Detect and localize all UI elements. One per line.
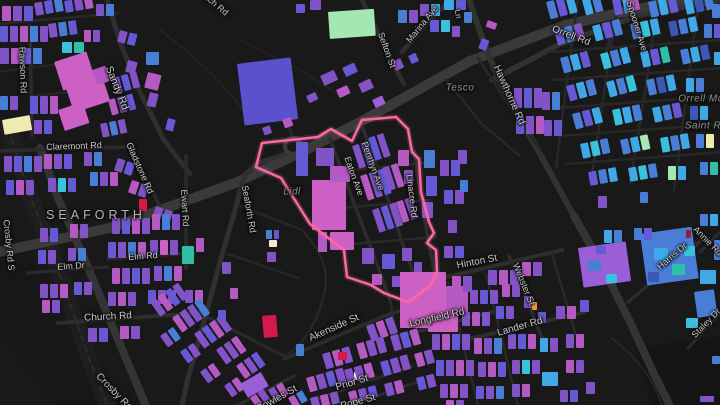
building-cluster — [538, 312, 546, 323]
building[interactable] — [464, 12, 472, 23]
building[interactable] — [132, 218, 140, 234]
building-cluster — [586, 382, 595, 394]
building[interactable] — [514, 88, 522, 108]
building[interactable] — [118, 242, 126, 258]
building-cluster — [139, 199, 147, 211]
building[interactable] — [68, 248, 76, 261]
building-cluster — [488, 270, 519, 285]
building[interactable] — [154, 266, 162, 281]
building[interactable] — [570, 390, 578, 402]
building[interactable] — [696, 134, 704, 148]
building[interactable] — [131, 326, 140, 339]
building[interactable] — [432, 334, 440, 350]
building[interactable] — [476, 386, 484, 399]
building[interactable] — [84, 30, 91, 42]
building[interactable] — [4, 156, 12, 172]
building[interactable] — [478, 362, 486, 377]
building[interactable] — [296, 142, 308, 176]
building[interactable] — [450, 384, 458, 398]
building-cluster — [382, 254, 395, 269]
building[interactable] — [312, 180, 346, 230]
building[interactable] — [498, 362, 506, 377]
building[interactable] — [218, 310, 226, 320]
building[interactable] — [269, 240, 277, 247]
building-cluster — [474, 338, 502, 354]
building[interactable] — [458, 150, 467, 164]
building[interactable] — [44, 120, 52, 134]
building[interactable] — [62, 42, 72, 53]
building[interactable] — [596, 246, 606, 254]
building[interactable] — [274, 230, 279, 239]
building[interactable] — [554, 120, 562, 136]
building[interactable] — [34, 120, 42, 134]
building[interactable] — [472, 312, 480, 326]
building[interactable] — [24, 6, 33, 21]
building[interactable] — [196, 238, 204, 252]
building-cluster — [672, 264, 685, 275]
building-cluster — [686, 230, 691, 238]
building-cluster — [150, 240, 178, 255]
building[interactable] — [99, 328, 108, 342]
building-cluster — [470, 290, 498, 304]
building[interactable] — [696, 78, 704, 92]
building[interactable] — [10, 96, 18, 110]
building-cluster — [182, 246, 194, 264]
building[interactable] — [532, 302, 537, 310]
building-cluster — [452, 26, 460, 37]
building[interactable] — [486, 386, 494, 399]
building[interactable] — [170, 240, 178, 255]
building[interactable] — [398, 10, 407, 23]
building-cluster — [222, 262, 231, 274]
building[interactable] — [460, 180, 468, 192]
building[interactable] — [48, 250, 56, 264]
building[interactable] — [128, 242, 136, 258]
building[interactable] — [174, 266, 182, 281]
building[interactable] — [446, 360, 454, 376]
building-cluster — [460, 180, 468, 192]
building[interactable] — [488, 270, 497, 285]
building[interactable] — [30, 96, 38, 114]
building[interactable] — [24, 156, 32, 172]
building[interactable] — [499, 270, 508, 285]
building[interactable] — [330, 166, 350, 182]
building-cluster — [700, 396, 714, 402]
building[interactable] — [14, 156, 22, 172]
building-cluster — [524, 296, 532, 308]
building[interactable] — [160, 240, 168, 255]
building[interactable] — [480, 290, 488, 304]
building[interactable] — [430, 20, 439, 32]
building[interactable] — [20, 26, 28, 42]
building[interactable] — [164, 266, 172, 281]
building[interactable] — [522, 262, 531, 276]
building[interactable] — [328, 9, 376, 39]
building[interactable] — [508, 334, 516, 349]
building[interactable] — [50, 96, 58, 114]
building[interactable] — [26, 180, 34, 195]
building[interactable] — [40, 96, 48, 114]
building[interactable] — [60, 284, 68, 298]
building[interactable] — [556, 306, 565, 319]
building[interactable] — [106, 4, 114, 16]
building[interactable] — [122, 218, 130, 234]
building[interactable] — [431, 4, 440, 16]
building-cluster — [712, 356, 720, 364]
building[interactable] — [550, 338, 558, 352]
building[interactable] — [316, 148, 334, 166]
building[interactable] — [522, 384, 530, 397]
building[interactable] — [146, 52, 159, 65]
building-cluster — [310, 0, 321, 10]
building[interactable] — [686, 230, 691, 238]
building[interactable] — [704, 24, 712, 38]
building[interactable] — [606, 274, 617, 283]
building[interactable] — [52, 300, 60, 313]
building[interactable] — [567, 306, 576, 319]
building[interactable] — [58, 178, 66, 192]
building[interactable] — [64, 154, 72, 169]
building[interactable] — [580, 300, 589, 312]
building[interactable] — [118, 292, 126, 306]
building[interactable] — [11, 48, 20, 64]
building[interactable] — [518, 334, 526, 349]
building[interactable] — [494, 338, 502, 354]
building[interactable] — [237, 57, 298, 125]
building-cluster — [478, 362, 506, 377]
building[interactable] — [382, 254, 395, 269]
building-cluster — [296, 344, 304, 356]
building[interactable] — [436, 360, 444, 376]
building[interactable] — [496, 306, 504, 319]
building[interactable] — [460, 384, 468, 398]
building[interactable] — [542, 92, 550, 110]
building[interactable] — [172, 214, 180, 230]
building[interactable] — [456, 360, 464, 376]
building[interactable] — [128, 292, 136, 306]
building[interactable] — [40, 228, 48, 242]
building[interactable] — [440, 384, 448, 398]
building[interactable] — [13, 6, 22, 21]
building[interactable] — [700, 162, 708, 175]
building[interactable] — [455, 246, 464, 258]
building[interactable] — [442, 334, 450, 350]
building[interactable] — [94, 152, 102, 166]
building-cluster — [414, 262, 422, 272]
building-cluster — [532, 302, 537, 310]
building[interactable] — [266, 230, 272, 239]
building[interactable] — [398, 150, 409, 166]
building[interactable] — [40, 284, 48, 298]
building[interactable] — [230, 288, 238, 299]
building[interactable] — [506, 306, 514, 319]
building[interactable] — [108, 242, 116, 258]
building[interactable] — [162, 214, 170, 230]
building[interactable] — [614, 230, 622, 243]
building[interactable] — [10, 26, 18, 42]
building[interactable] — [262, 315, 278, 338]
building[interactable] — [93, 30, 100, 42]
building[interactable] — [441, 20, 450, 32]
building[interactable] — [542, 372, 558, 386]
building[interactable] — [100, 172, 108, 186]
building-cluster — [714, 52, 720, 65]
building[interactable] — [444, 0, 454, 10]
building[interactable] — [706, 134, 714, 148]
building[interactable] — [490, 290, 498, 304]
building[interactable] — [80, 224, 88, 238]
building[interactable] — [566, 334, 574, 348]
building[interactable] — [48, 178, 56, 192]
building[interactable] — [512, 284, 520, 297]
building[interactable] — [668, 166, 676, 180]
building[interactable] — [142, 218, 150, 234]
building-cluster — [700, 270, 716, 284]
building[interactable] — [182, 246, 194, 264]
building[interactable] — [310, 0, 321, 10]
building[interactable] — [598, 196, 607, 208]
building[interactable] — [444, 246, 453, 258]
building[interactable] — [648, 272, 659, 282]
building-cluster — [40, 284, 68, 298]
building[interactable] — [456, 400, 464, 405]
building[interactable] — [54, 154, 62, 169]
building[interactable] — [132, 268, 140, 284]
building[interactable] — [402, 248, 412, 261]
building[interactable] — [678, 166, 686, 180]
building[interactable] — [502, 284, 510, 297]
building-cluster — [424, 150, 435, 168]
building[interactable] — [710, 162, 718, 175]
building-cluster — [448, 220, 457, 233]
building[interactable] — [640, 192, 648, 203]
building[interactable] — [484, 338, 492, 354]
building[interactable] — [474, 338, 482, 354]
building[interactable] — [2, 6, 11, 21]
building[interactable] — [34, 156, 42, 172]
building[interactable] — [50, 284, 58, 298]
building[interactable] — [152, 214, 160, 230]
building[interactable] — [524, 88, 532, 108]
building[interactable] — [74, 42, 84, 53]
building[interactable] — [70, 224, 78, 238]
building[interactable] — [44, 154, 52, 169]
building-cluster — [588, 260, 601, 271]
building[interactable] — [338, 352, 347, 360]
building[interactable] — [714, 24, 720, 38]
building-cluster — [362, 248, 374, 264]
building[interactable] — [40, 26, 48, 42]
building[interactable] — [672, 264, 685, 275]
building[interactable] — [470, 290, 478, 304]
building[interactable] — [0, 96, 8, 110]
map-canvas[interactable]: Beach RdSandy RdRawson RdClaremont RdGla… — [0, 0, 720, 405]
building[interactable] — [534, 88, 542, 108]
building-cluster — [196, 238, 204, 252]
building[interactable] — [122, 268, 130, 284]
building[interactable] — [296, 4, 305, 13]
building[interactable] — [78, 248, 86, 261]
building[interactable] — [452, 276, 461, 292]
building[interactable] — [604, 230, 612, 243]
building[interactable] — [686, 78, 694, 92]
building[interactable] — [712, 356, 720, 364]
building-cluster — [274, 230, 279, 239]
building[interactable] — [84, 282, 92, 295]
building-cluster — [267, 252, 276, 262]
building[interactable] — [710, 214, 718, 226]
building[interactable] — [522, 360, 530, 374]
building[interactable] — [712, 4, 720, 18]
building[interactable] — [684, 246, 695, 256]
building[interactable] — [22, 48, 31, 64]
building[interactable] — [512, 360, 520, 374]
building[interactable] — [544, 120, 552, 136]
building-cluster — [330, 166, 350, 182]
building[interactable] — [296, 344, 304, 356]
building[interactable] — [576, 360, 584, 373]
building-cluster — [654, 248, 668, 260]
building[interactable] — [533, 262, 542, 276]
building-cluster — [398, 150, 409, 166]
building[interactable] — [528, 334, 536, 349]
building[interactable] — [138, 242, 146, 258]
building[interactable] — [462, 334, 470, 350]
building[interactable] — [96, 4, 104, 16]
building[interactable] — [0, 26, 8, 42]
building[interactable] — [463, 276, 472, 292]
building-cluster — [596, 246, 606, 254]
building[interactable] — [444, 190, 453, 204]
building-cluster — [542, 372, 558, 386]
building-cluster — [580, 300, 589, 312]
building[interactable] — [686, 318, 698, 328]
building[interactable] — [526, 116, 534, 134]
building[interactable] — [586, 382, 595, 394]
building[interactable] — [700, 396, 714, 402]
building[interactable] — [139, 199, 147, 211]
building-cluster — [694, 289, 717, 318]
building[interactable] — [108, 292, 116, 306]
building[interactable] — [700, 270, 716, 284]
building[interactable] — [452, 26, 460, 37]
building[interactable] — [566, 360, 574, 373]
building[interactable] — [466, 360, 474, 376]
building[interactable] — [120, 326, 129, 339]
building[interactable] — [267, 252, 276, 262]
building[interactable] — [524, 296, 532, 308]
building-cluster — [464, 12, 472, 23]
building[interactable] — [110, 172, 118, 186]
building[interactable] — [488, 362, 496, 377]
building[interactable] — [74, 282, 82, 295]
building[interactable] — [33, 48, 42, 64]
building[interactable] — [714, 240, 720, 260]
building[interactable] — [510, 270, 519, 285]
building-cluster — [440, 384, 468, 398]
building[interactable] — [538, 312, 546, 323]
building[interactable] — [588, 260, 601, 271]
building[interactable] — [50, 228, 58, 242]
building[interactable] — [540, 338, 548, 352]
building-cluster — [316, 148, 334, 166]
building[interactable] — [700, 106, 708, 120]
building[interactable] — [714, 52, 720, 65]
building-cluster — [0, 26, 48, 42]
building[interactable] — [68, 178, 76, 192]
building-cluster — [230, 288, 238, 299]
building-cluster — [704, 24, 720, 38]
building[interactable] — [455, 190, 464, 204]
building[interactable] — [700, 214, 708, 226]
building[interactable] — [38, 250, 46, 264]
building-cluster — [686, 318, 698, 328]
building[interactable] — [84, 152, 92, 166]
building-cluster — [328, 9, 376, 39]
building-cluster — [338, 352, 347, 360]
building[interactable] — [414, 262, 422, 272]
building[interactable] — [424, 150, 435, 168]
building[interactable] — [16, 180, 24, 195]
building[interactable] — [426, 176, 437, 196]
building[interactable] — [222, 262, 231, 274]
building-cluster — [296, 4, 305, 13]
building[interactable] — [420, 4, 429, 16]
building-cluster — [512, 360, 540, 374]
building[interactable] — [576, 334, 584, 348]
building[interactable] — [88, 328, 97, 342]
building[interactable] — [532, 360, 540, 374]
building[interactable] — [0, 48, 9, 64]
building[interactable] — [448, 220, 457, 233]
building[interactable] — [644, 228, 652, 240]
building[interactable] — [404, 170, 413, 184]
building[interactable] — [440, 160, 449, 176]
building[interactable] — [690, 106, 698, 120]
building[interactable] — [6, 180, 14, 195]
building[interactable] — [634, 228, 642, 240]
building[interactable] — [409, 10, 418, 23]
building[interactable] — [30, 26, 38, 42]
building[interactable] — [112, 268, 120, 284]
building[interactable] — [456, 0, 466, 10]
building[interactable] — [446, 400, 454, 405]
building-cluster — [598, 196, 607, 208]
building[interactable] — [362, 248, 374, 264]
building[interactable] — [482, 312, 490, 326]
building[interactable] — [512, 384, 520, 397]
building-cluster — [2, 6, 33, 21]
building-cluster — [90, 172, 118, 186]
building-cluster — [296, 142, 308, 176]
building[interactable] — [560, 390, 568, 402]
building[interactable] — [552, 92, 560, 110]
building[interactable] — [112, 218, 120, 234]
building[interactable] — [516, 116, 524, 134]
building[interactable] — [452, 334, 460, 350]
building[interactable] — [142, 268, 150, 284]
building[interactable] — [150, 240, 158, 255]
building-cluster — [426, 176, 437, 196]
building[interactable] — [536, 116, 544, 134]
building[interactable] — [42, 300, 50, 313]
building[interactable] — [496, 386, 504, 399]
building[interactable] — [462, 312, 470, 326]
building[interactable] — [90, 172, 98, 186]
building[interactable] — [654, 248, 668, 260]
building[interactable] — [694, 289, 717, 318]
building-cluster — [44, 154, 72, 169]
